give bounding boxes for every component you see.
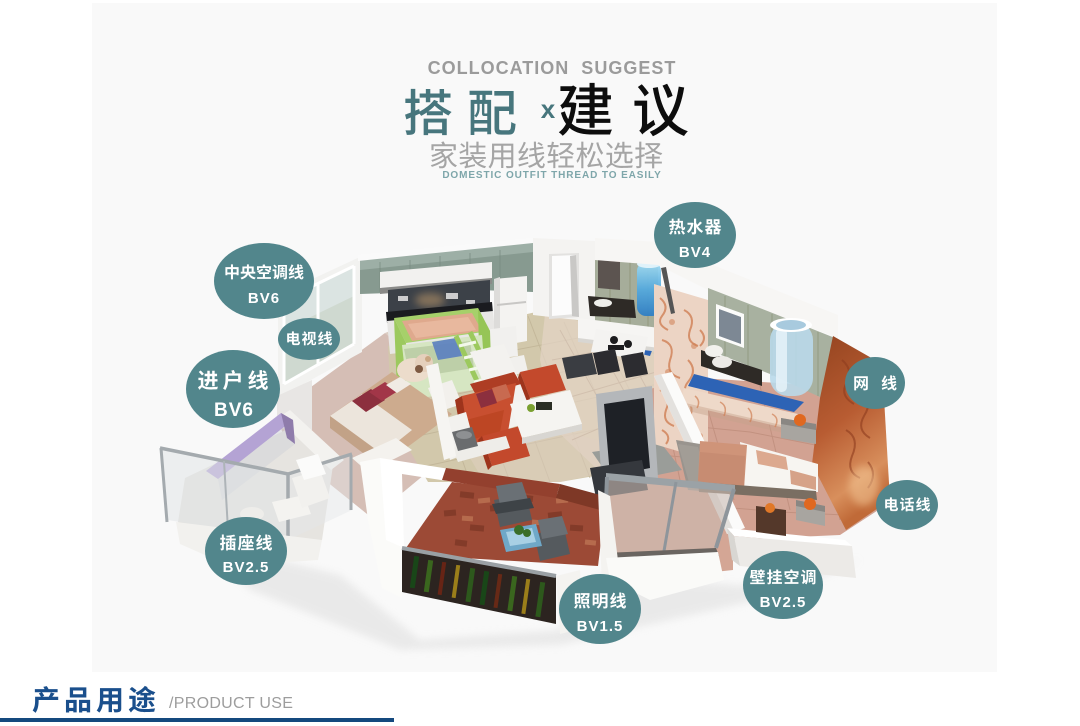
- svg-text:BV2.5: BV2.5: [223, 559, 270, 576]
- svg-text:BV2.5: BV2.5: [760, 594, 807, 611]
- svg-text:BV1.5: BV1.5: [577, 618, 624, 635]
- svg-text:BV6: BV6: [214, 400, 254, 421]
- svg-text:BV6: BV6: [248, 290, 280, 307]
- svg-text:BV4: BV4: [679, 244, 711, 261]
